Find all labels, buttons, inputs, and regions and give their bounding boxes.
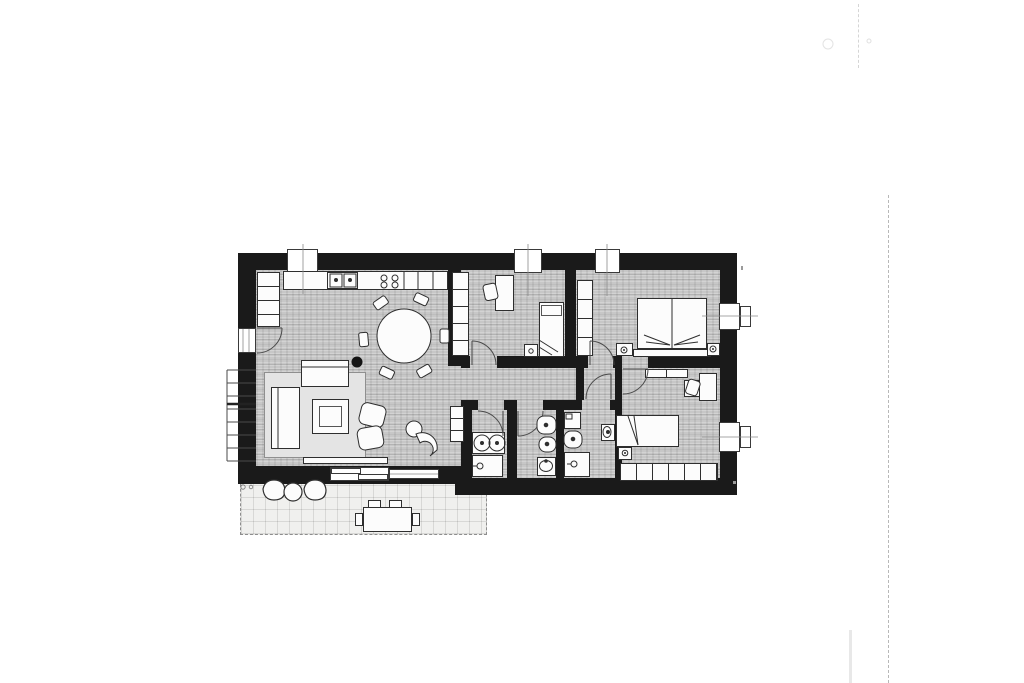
window-1 — [287, 249, 318, 273]
window-4 — [719, 303, 740, 330]
window-5 — [719, 422, 740, 452]
bedroom2-wardrobe — [577, 280, 593, 356]
wall-bed-south-d — [648, 356, 720, 368]
scanned-page — [0, 0, 1024, 683]
bedroom1-nightstand — [524, 344, 538, 357]
wall-bath1-bath2 — [507, 410, 517, 478]
bedroom2-headboard — [633, 349, 711, 357]
scan-smudge-bottom-right — [849, 630, 852, 683]
window-3 — [595, 249, 620, 273]
terrace-chair-right — [412, 513, 420, 526]
bedroom1-pillow — [541, 305, 562, 316]
kitchen-counter — [283, 271, 448, 290]
wall-bath2-bath3 — [556, 410, 564, 478]
bedroom1-desk — [495, 275, 514, 311]
terrace-chair-top2 — [389, 500, 402, 508]
wall-left — [238, 253, 256, 484]
bedroom2-nightstand-right — [707, 343, 720, 356]
wall-bath-top-c — [543, 400, 582, 410]
bathroom3-washbasin — [601, 424, 615, 441]
sofa-left — [271, 387, 300, 449]
hallway-shelf-unit — [450, 406, 464, 442]
bedroom2-nightstand-left — [616, 343, 633, 356]
bathroom3-shower — [564, 452, 590, 477]
wall-bath-top-d — [610, 400, 622, 410]
window-2 — [514, 249, 542, 273]
terrace-chair-top1 — [368, 500, 381, 508]
terrace-chair-left — [355, 513, 363, 526]
wall-bed-south-b — [497, 356, 588, 368]
bedroom3-desk — [699, 373, 717, 401]
bedroom1-wardrobe — [452, 272, 469, 356]
scan-artifact-marks — [733, 39, 871, 484]
wall-bedroom1-2 — [565, 270, 576, 356]
window-5-sill — [740, 426, 751, 448]
bedroom3-nightstand — [618, 447, 632, 460]
wall-hall-nook — [576, 366, 584, 400]
bedroom2-double-bed — [637, 298, 707, 349]
wall-bath-top-b — [504, 400, 517, 410]
bathroom1-vanity — [472, 432, 505, 454]
bedroom3-wardrobe — [620, 463, 718, 481]
window-4-sill — [740, 306, 751, 327]
bedroom3-shelf — [645, 369, 688, 378]
kitchen-tall-cabinets — [257, 272, 280, 327]
wall-bed-south-a — [461, 356, 470, 368]
bedroom3-bed — [616, 415, 679, 447]
terrace-sliding-panel-1 — [331, 468, 361, 474]
scan-line-top-right — [858, 4, 859, 68]
low-sideboard — [303, 457, 388, 464]
terrace-sliding-panel-2 — [358, 474, 388, 480]
kitchen-sink-unit — [327, 272, 358, 289]
coffee-table-inner — [319, 406, 342, 427]
bathroom1-shower — [472, 455, 503, 477]
bathroom2-washbasin — [537, 457, 556, 476]
bathroom3-washing-machine — [564, 412, 581, 429]
wall-right — [720, 253, 737, 495]
scan-line-right-margin — [888, 195, 889, 683]
sofa-top — [301, 360, 349, 387]
wall-bed-south-c — [613, 356, 622, 368]
terrace-window — [389, 469, 439, 479]
entrance-door-opening — [238, 328, 256, 353]
terrace-table — [363, 507, 412, 532]
